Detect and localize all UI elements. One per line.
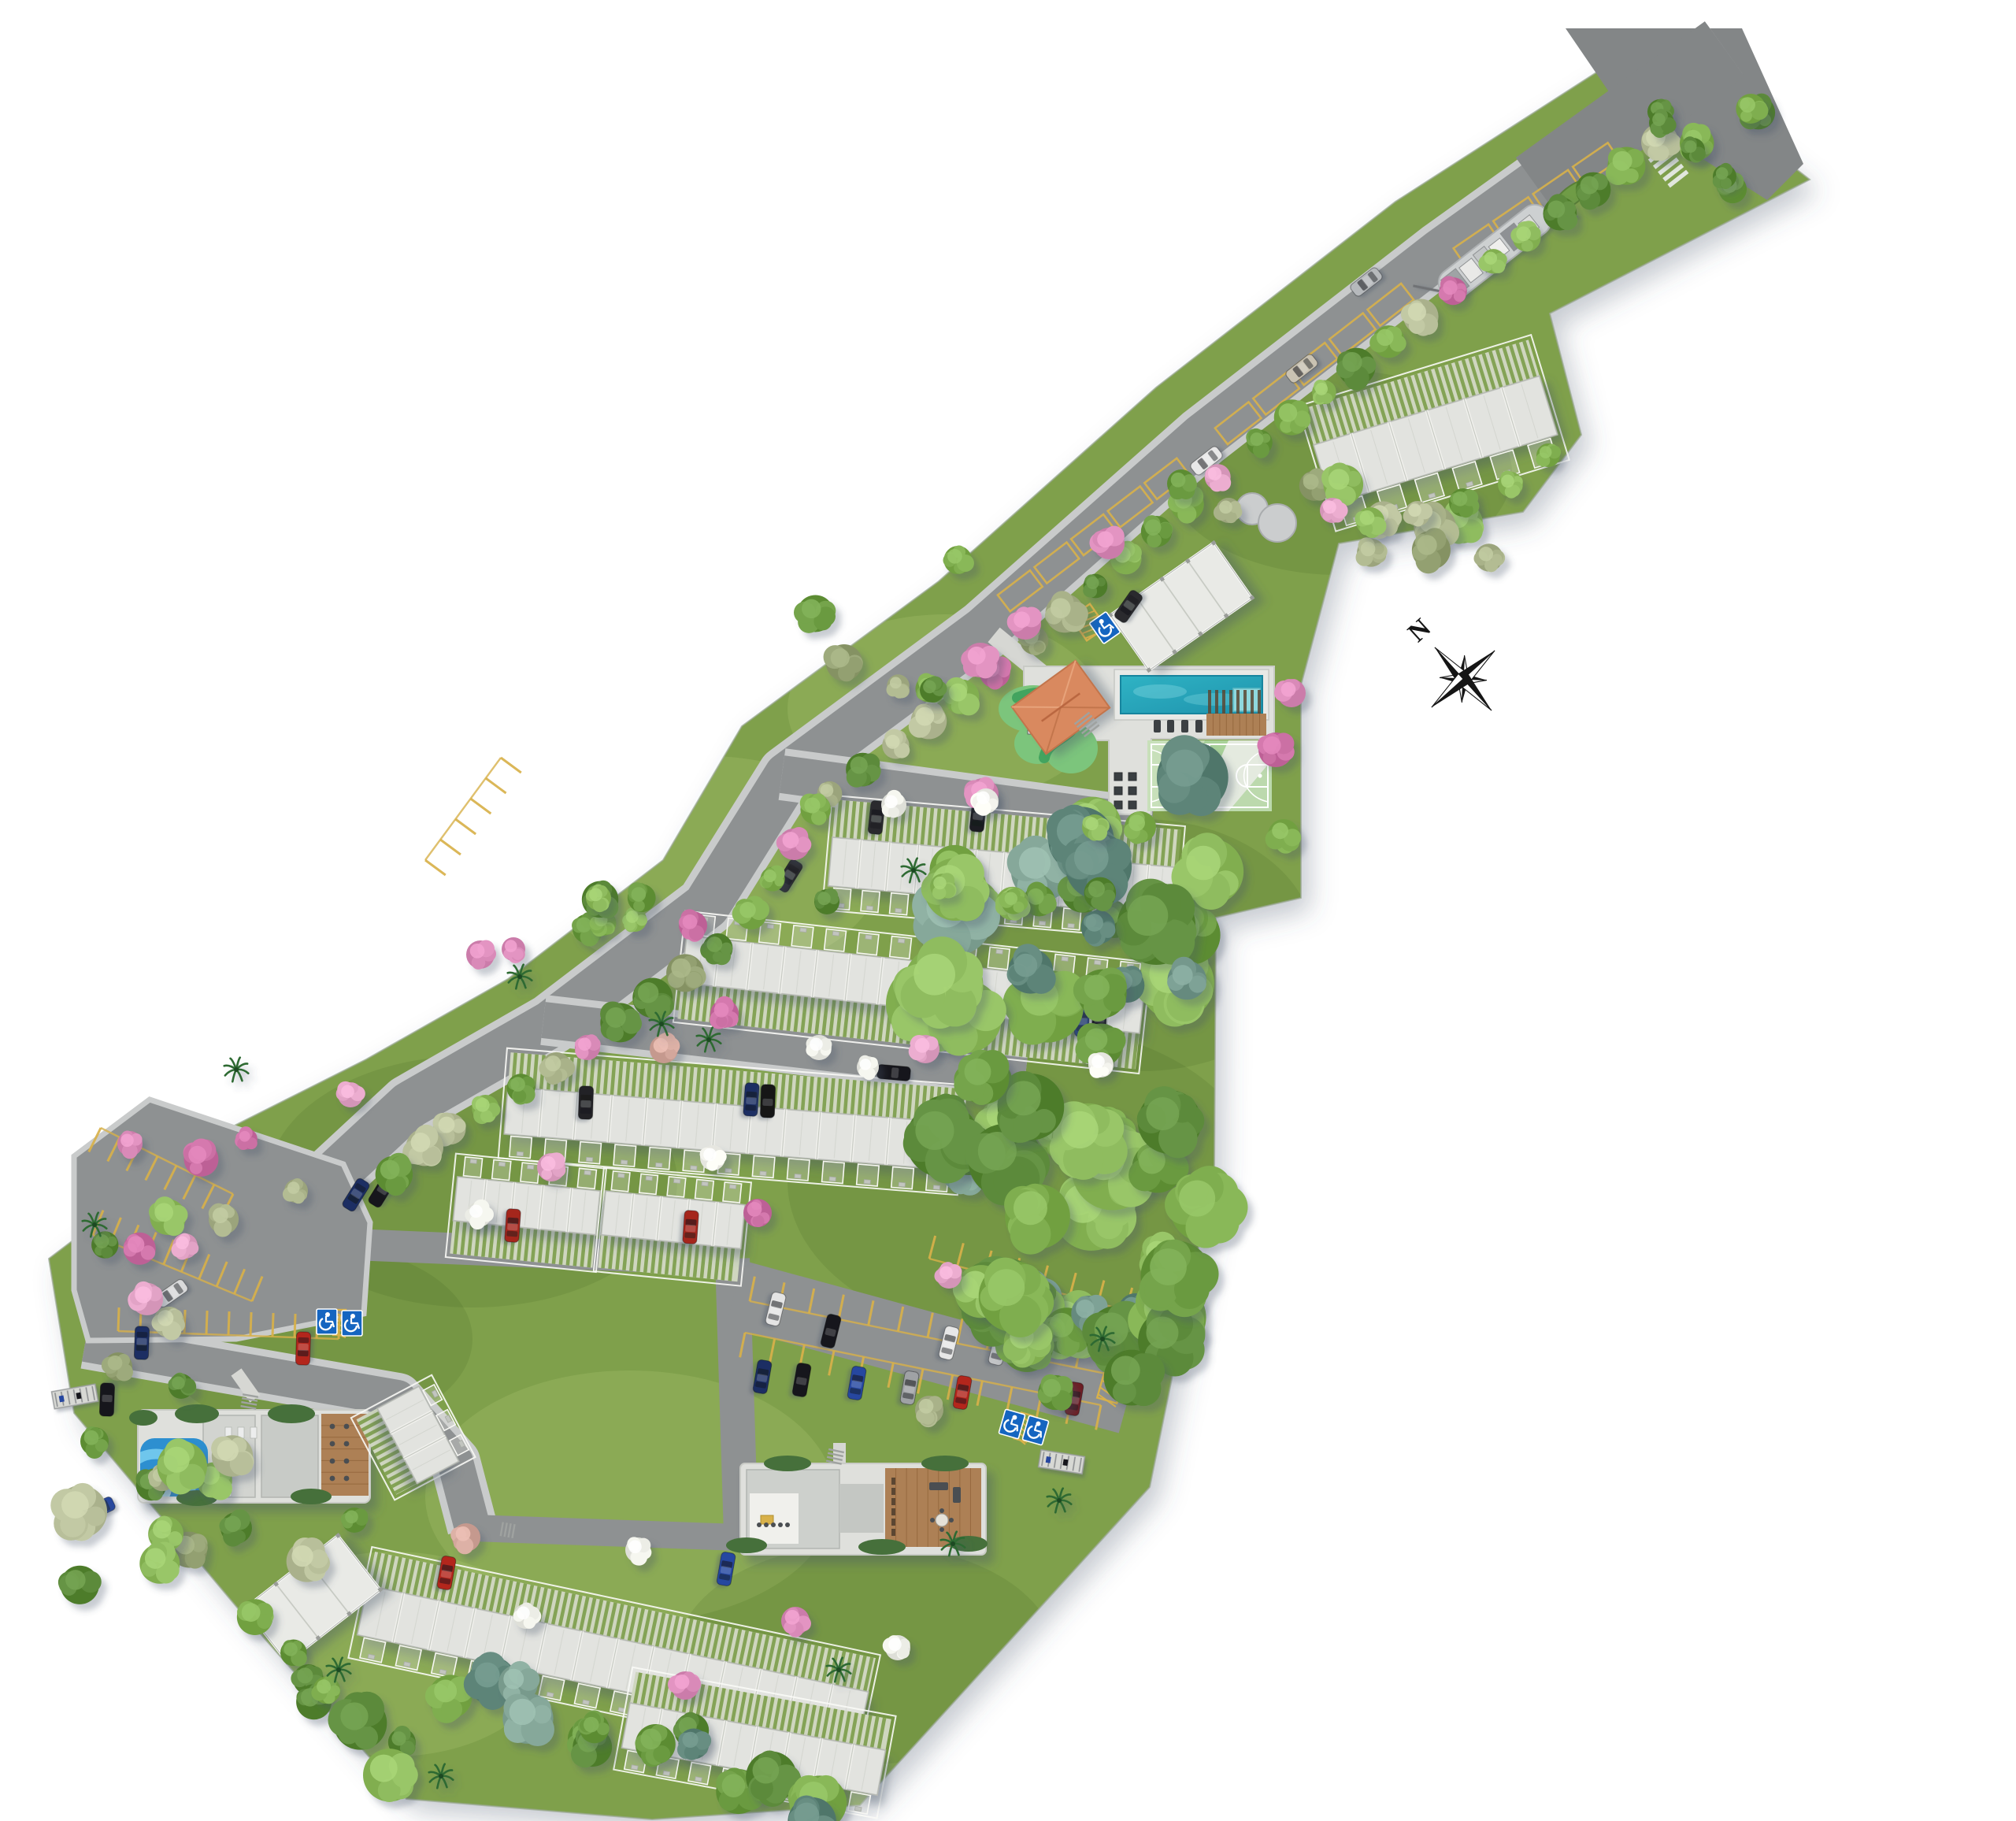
parked-car — [760, 1085, 775, 1118]
tree — [124, 1233, 156, 1265]
tree — [50, 1483, 107, 1541]
parked-car — [505, 1208, 521, 1242]
tree — [91, 1231, 118, 1258]
tree — [183, 1139, 219, 1177]
masterplan-illustration: N — [0, 0, 2016, 1821]
tree — [1473, 543, 1505, 572]
tree — [794, 595, 836, 633]
tree — [1083, 574, 1107, 599]
picnic-table — [1114, 801, 1122, 809]
tree — [502, 1693, 554, 1746]
tree — [1104, 1350, 1165, 1407]
picnic-table — [1128, 787, 1136, 795]
compass-rose: N — [1403, 613, 1495, 710]
paved-pad — [1258, 504, 1296, 542]
row-g2b — [594, 1168, 751, 1286]
tree — [1356, 537, 1388, 566]
parking-stall-lines — [425, 758, 521, 875]
tree — [1606, 147, 1645, 185]
parked-car — [876, 1064, 910, 1081]
tree — [814, 888, 839, 914]
parked-car — [99, 1383, 114, 1417]
picnic-table — [1128, 801, 1136, 809]
tree — [466, 940, 496, 970]
compass-north-label: N — [1403, 613, 1436, 647]
tree — [743, 1199, 772, 1227]
parked-car — [295, 1332, 310, 1366]
picnic-table — [1114, 773, 1122, 781]
tree — [943, 545, 973, 573]
amenity-roof — [261, 1415, 318, 1497]
picnic-table — [1114, 787, 1122, 795]
accessible-parking-icon — [317, 1309, 337, 1334]
tree — [363, 1749, 418, 1802]
parked-car — [683, 1210, 699, 1244]
tree — [502, 937, 525, 963]
tree — [1140, 1240, 1219, 1318]
tree — [280, 1640, 307, 1667]
tree — [58, 1566, 102, 1604]
site-plan-canvas: N — [0, 0, 2016, 1821]
parked-car — [578, 1086, 593, 1120]
palm-tree — [224, 1058, 249, 1082]
picnic-table — [1128, 773, 1136, 781]
parked-car — [134, 1326, 149, 1360]
tree — [139, 1542, 180, 1584]
tree — [909, 1035, 939, 1063]
accessible-parking-icon — [342, 1311, 362, 1336]
parked-car — [743, 1082, 760, 1116]
